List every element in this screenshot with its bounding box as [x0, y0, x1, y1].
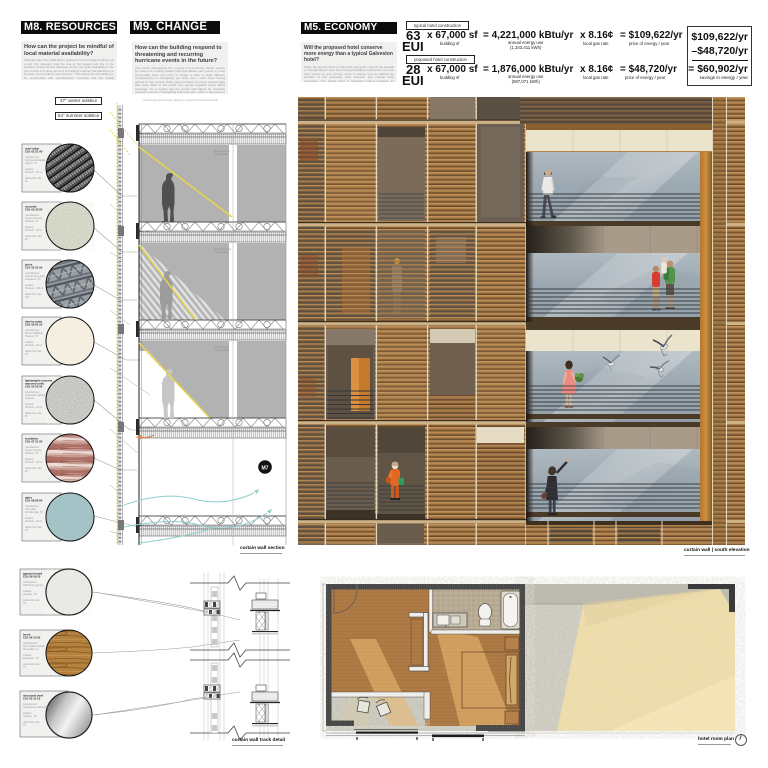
svg-text:configuration: configuration	[214, 152, 229, 156]
svg-text:Houston - 45 mi: Houston - 45 mi	[25, 229, 42, 232]
svg-text:Amerisa steel fabrication: Amerisa steel fabrication	[23, 706, 50, 709]
svg-text:Beaumont - 75: Beaumont - 75	[23, 657, 39, 660]
svg-text:Alexandria, LA: Alexandria, LA	[23, 648, 39, 651]
svg-text:Houston, TX: Houston, TX	[25, 220, 39, 223]
svg-text:covering all exposed room glaz: covering all exposed room glazing to pro…	[143, 98, 219, 102]
svg-text:CSI: 03 21 00: CSI: 03 21 00	[25, 150, 43, 154]
svg-text:Grapeland, TX: Grapeland, TX	[25, 278, 41, 281]
svg-text:configuration: configuration	[214, 250, 229, 254]
svg-text:130: 130	[25, 296, 30, 299]
svg-text:products: products	[25, 397, 35, 400]
svg-text:CSI: 09 29 10: CSI: 09 29 10	[23, 575, 41, 579]
svg-text:Houston - 50 mi: Houston - 50 mi	[25, 171, 42, 174]
svg-text:CSI: 08 80 00: CSI: 08 80 00	[25, 499, 43, 503]
svg-text:Houston, TX: Houston, TX	[25, 335, 39, 338]
svg-text:Seguin, TX: Seguin, TX	[25, 162, 37, 165]
svg-text:Houston - 45 mi: Houston - 45 mi	[25, 406, 42, 409]
svg-text:Houston, TX: Houston, TX	[25, 452, 39, 455]
svg-text:CSI: 06 10 53: CSI: 06 10 53	[23, 636, 41, 640]
svg-text:Houston - 45: Houston - 45	[23, 593, 37, 596]
svg-text:CSI: 09 91 23: CSI: 09 91 23	[25, 323, 43, 327]
svg-text:configuration: configuration	[214, 348, 229, 352]
svg-text:Houston - 130 mi: Houston - 130 mi	[25, 287, 44, 290]
svg-text:Houston - 45 mi: Houston - 45 mi	[25, 344, 42, 347]
svg-text:Houston - 45 mi: Houston - 45 mi	[25, 520, 42, 523]
svg-text:CSI: 05 21 00: CSI: 05 21 00	[25, 266, 43, 270]
svg-text:CSI: 04 22 00: CSI: 04 22 00	[25, 385, 43, 389]
svg-text:Houston - 45 mi: Houston - 45 mi	[25, 461, 42, 464]
svg-text:Wichita Falls, TX: Wichita Falls, TX	[25, 511, 43, 514]
svg-text:M7: M7	[262, 466, 269, 472]
svg-text:CSI: 03 30 00: CSI: 03 30 00	[25, 208, 43, 212]
svg-text:CSI: 07 21 00: CSI: 07 21 00	[25, 440, 43, 444]
svg-text:CSI: 05 12 13: CSI: 05 12 13	[23, 697, 41, 701]
svg-text:Houston - 45: Houston - 45	[23, 715, 37, 718]
svg-text:USG/CGC gypsum: USG/CGC gypsum	[23, 584, 43, 587]
